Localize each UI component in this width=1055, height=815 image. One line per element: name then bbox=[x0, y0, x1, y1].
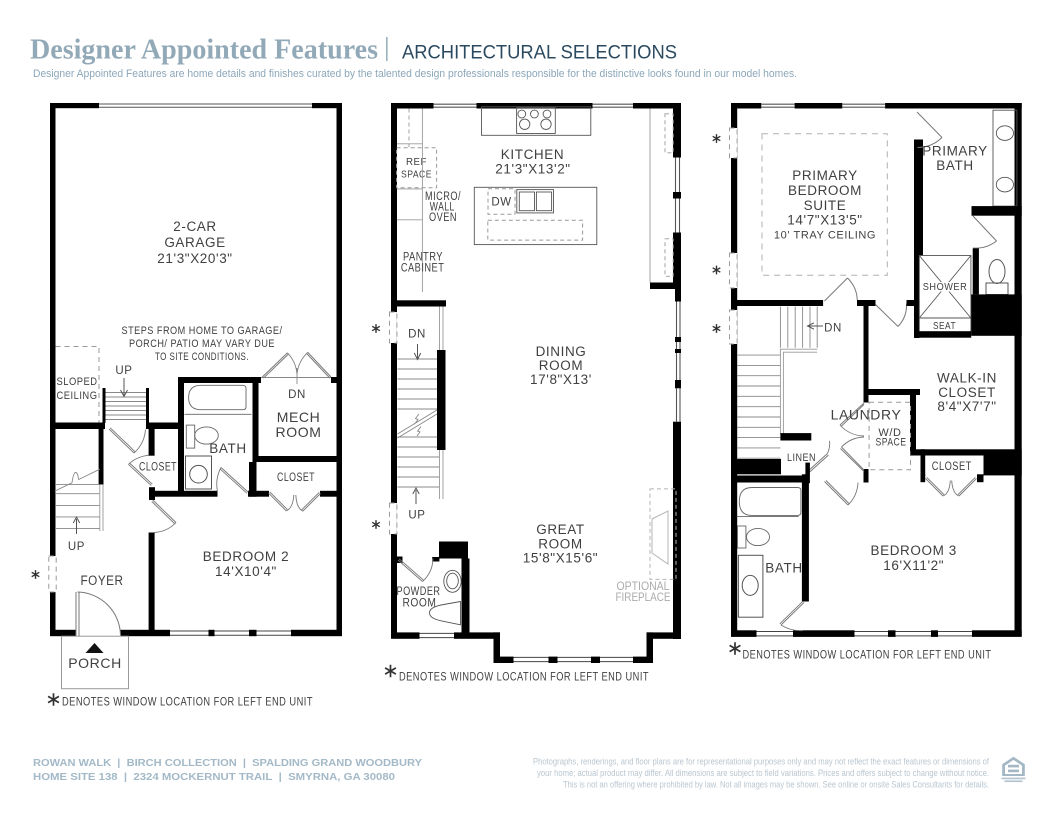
svg-text:21'3"X13'2": 21'3"X13'2" bbox=[495, 162, 570, 177]
svg-text:17'8"X13': 17'8"X13' bbox=[530, 372, 592, 387]
svg-text:SPACE: SPACE bbox=[401, 169, 432, 181]
svg-text:CLOSET: CLOSET bbox=[139, 462, 177, 474]
svg-text:BATH: BATH bbox=[209, 441, 246, 456]
svg-text:SLOPED: SLOPED bbox=[57, 376, 98, 388]
svg-text:SUITE: SUITE bbox=[804, 198, 847, 213]
svg-text:GREAT: GREAT bbox=[536, 522, 585, 537]
svg-text:CLOSET: CLOSET bbox=[932, 461, 972, 473]
svg-text:ROWAN WALK | BIRCH COLLECTIO: ROWAN WALK | BIRCH COLLECTION | SPALDING… bbox=[33, 758, 422, 769]
svg-text:SHOWER: SHOWER bbox=[923, 282, 968, 293]
svg-text:BATH: BATH bbox=[936, 158, 973, 173]
svg-text:DENOTES WINDOW LOCATION FOR LE: DENOTES WINDOW LOCATION FOR LEFT END UNI… bbox=[743, 650, 992, 662]
svg-text:STEPS FROM HOME TO GARAGE/: STEPS FROM HOME TO GARAGE/ bbox=[122, 325, 283, 337]
svg-text:DENOTES WINDOW LOCATION FOR LE: DENOTES WINDOW LOCATION FOR LEFT END UNI… bbox=[399, 672, 649, 684]
svg-text:ROOM: ROOM bbox=[539, 358, 583, 373]
svg-text:BEDROOM 3: BEDROOM 3 bbox=[870, 543, 956, 558]
svg-text:UP: UP bbox=[408, 510, 425, 522]
svg-text:OVEN: OVEN bbox=[429, 212, 457, 224]
svg-text:MECH: MECH bbox=[277, 409, 321, 425]
svg-text:FIREPLACE: FIREPLACE bbox=[616, 592, 671, 604]
svg-text:BEDROOM 2: BEDROOM 2 bbox=[203, 549, 289, 564]
svg-text:Photographs, renderings, and f: Photographs, renderings, and floor plans… bbox=[533, 757, 989, 767]
svg-text:DN: DN bbox=[408, 329, 426, 341]
svg-text:UP: UP bbox=[115, 365, 132, 377]
svg-text:DINING: DINING bbox=[536, 344, 587, 359]
svg-text:CLOSET: CLOSET bbox=[277, 472, 315, 484]
svg-text:ROOM: ROOM bbox=[403, 597, 437, 609]
svg-text:BATH: BATH bbox=[765, 561, 802, 576]
svg-text:BEDROOM: BEDROOM bbox=[788, 183, 862, 198]
svg-text:15'8"X15'6": 15'8"X15'6" bbox=[523, 551, 598, 566]
svg-text:PORCH: PORCH bbox=[68, 655, 122, 671]
svg-text:CABINET: CABINET bbox=[401, 263, 445, 275]
svg-text:8'4"X7'7": 8'4"X7'7" bbox=[937, 399, 996, 414]
svg-text:LAUNDRY: LAUNDRY bbox=[831, 407, 902, 423]
svg-text:FOYER: FOYER bbox=[81, 573, 124, 588]
svg-text:your home; actual product may: your home; actual product may differ. Al… bbox=[537, 768, 989, 778]
svg-text:LINEN: LINEN bbox=[787, 452, 816, 464]
svg-text:CLOSET: CLOSET bbox=[938, 385, 996, 400]
svg-text:PRIMARY: PRIMARY bbox=[922, 144, 987, 159]
svg-text:CEILING: CEILING bbox=[57, 390, 98, 402]
svg-text:DN: DN bbox=[824, 323, 842, 335]
svg-text:ARCHITECTURAL SELECTIONS: ARCHITECTURAL SELECTIONS bbox=[402, 42, 677, 63]
svg-text:ROOM: ROOM bbox=[538, 537, 582, 552]
svg-text:SPACE: SPACE bbox=[876, 437, 907, 449]
svg-text:21'3"X20'3": 21'3"X20'3" bbox=[157, 251, 232, 266]
svg-text:REF: REF bbox=[406, 156, 427, 168]
svg-text:ROOM: ROOM bbox=[276, 424, 322, 440]
svg-text:GARAGE: GARAGE bbox=[164, 235, 225, 250]
svg-text:Designer Appointed Features ar: Designer Appointed Features are home det… bbox=[33, 68, 797, 80]
svg-text:14'7"X13'5": 14'7"X13'5" bbox=[787, 213, 862, 228]
svg-text:SEAT: SEAT bbox=[933, 321, 956, 332]
svg-text:DW: DW bbox=[491, 197, 511, 209]
svg-text:HOME SITE 138 | 2324 MOCKERN: HOME SITE 138 | 2324 MOCKERNUT TRAIL | S… bbox=[33, 772, 395, 783]
svg-text:WALK-IN: WALK-IN bbox=[937, 371, 997, 386]
svg-text:Designer Appointed Features: Designer Appointed Features bbox=[30, 35, 378, 66]
svg-text:This is not an offering where: This is not an offering where prohibited… bbox=[563, 780, 989, 790]
svg-text:14'X10'4": 14'X10'4" bbox=[215, 564, 277, 579]
svg-text:2-CAR: 2-CAR bbox=[173, 219, 217, 234]
svg-text:TO SITE CONDITIONS.: TO SITE CONDITIONS. bbox=[155, 351, 249, 363]
svg-text:PRIMARY: PRIMARY bbox=[792, 168, 857, 183]
svg-text:UP: UP bbox=[68, 541, 85, 553]
svg-text:DENOTES WINDOW LOCATION FOR LE: DENOTES WINDOW LOCATION FOR LEFT END UNI… bbox=[62, 697, 313, 709]
svg-text:KITCHEN: KITCHEN bbox=[501, 147, 564, 162]
svg-text:16'X11'2": 16'X11'2" bbox=[883, 558, 944, 573]
svg-text:10' TRAY CEILING: 10' TRAY CEILING bbox=[774, 230, 876, 242]
svg-text:POWDER: POWDER bbox=[397, 586, 441, 598]
svg-text:DN: DN bbox=[288, 389, 306, 401]
svg-text:PORCH/ PATIO MAY VARY DUE: PORCH/ PATIO MAY VARY DUE bbox=[129, 338, 275, 350]
